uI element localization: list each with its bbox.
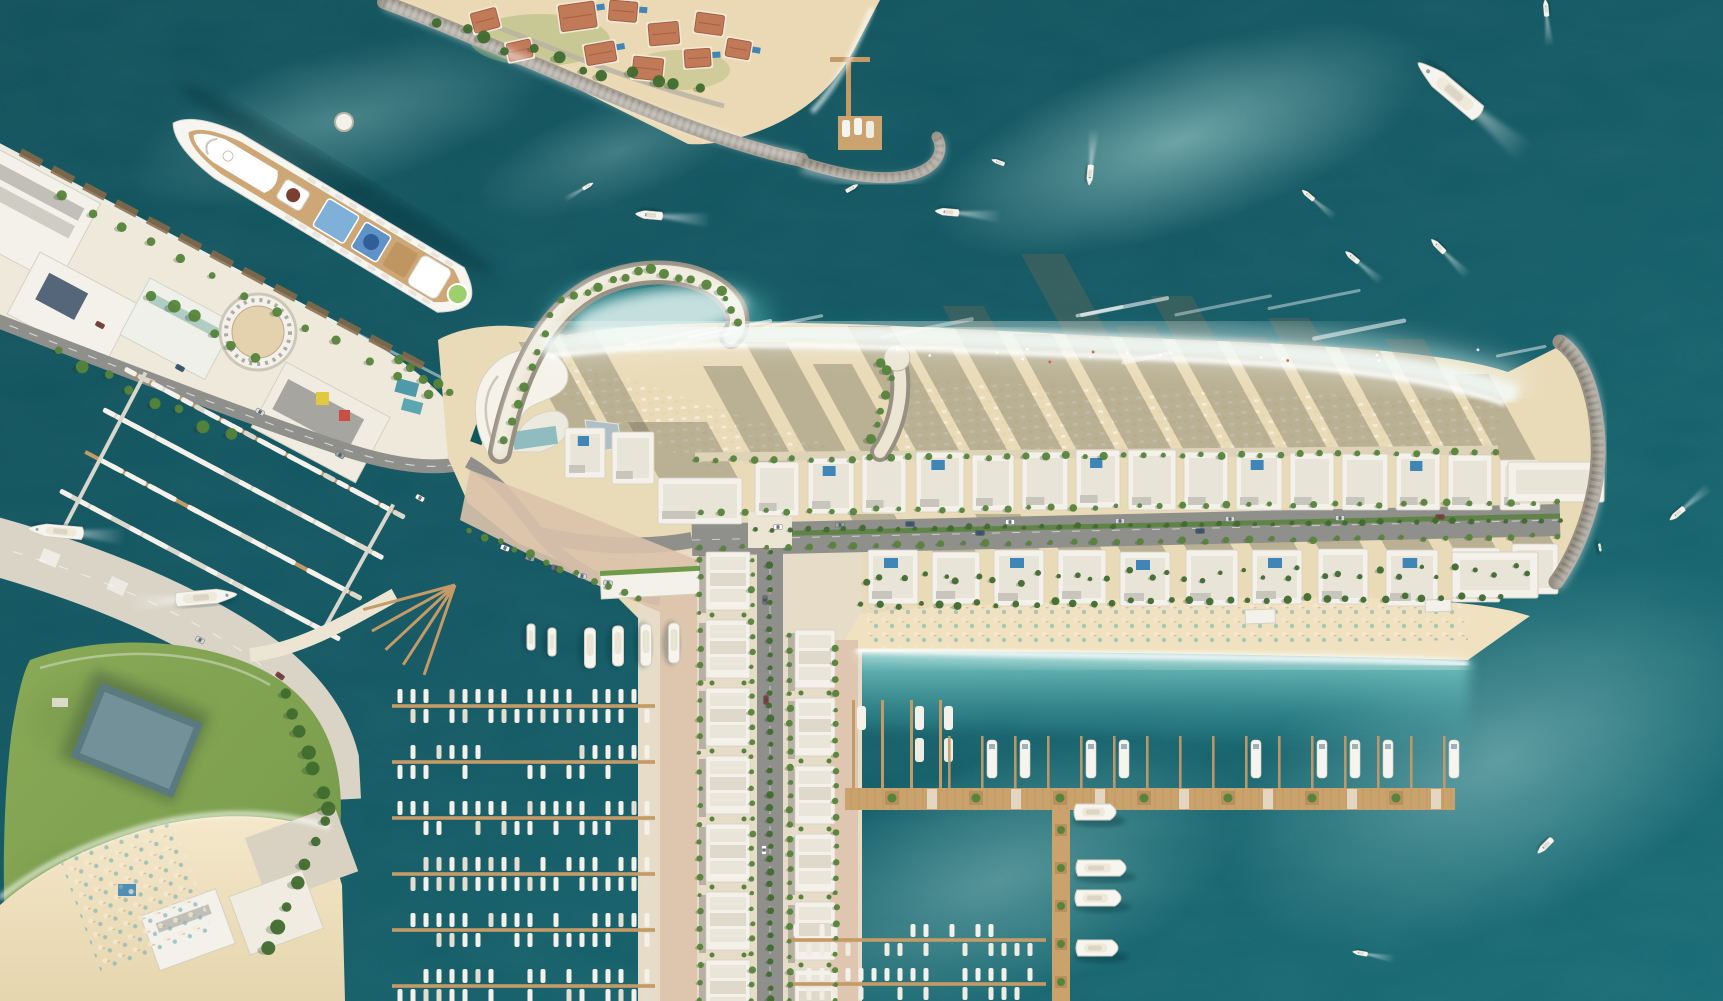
tree: [882, 365, 892, 375]
tree: [1452, 563, 1459, 570]
tree: [902, 575, 908, 581]
tree: [829, 542, 836, 549]
rooftop-plant: [1294, 497, 1312, 505]
tree: [829, 457, 835, 463]
tree: [787, 764, 794, 771]
tree: [1402, 593, 1409, 600]
beach-club: [1245, 609, 1275, 624]
swimmer: [1126, 351, 1129, 354]
berthed-boat: [885, 968, 890, 981]
berthed-boat: [567, 933, 572, 947]
berthed-boat: [528, 821, 533, 835]
tree: [554, 51, 566, 63]
berthed-boat: [606, 989, 611, 1001]
tree: [750, 921, 755, 926]
car-windshield: [1119, 519, 1122, 523]
marina-walkway: [392, 816, 655, 820]
berthed-boat: [541, 877, 546, 891]
tree: [1558, 518, 1563, 523]
berthed-boat: [567, 801, 572, 815]
tree: [749, 739, 755, 745]
tree: [311, 837, 321, 847]
tree: [1316, 450, 1323, 457]
berthed-boat: [554, 801, 559, 815]
tree: [786, 647, 792, 653]
tree: [939, 507, 945, 513]
tree: [1487, 501, 1492, 506]
garden-tree: [827, 827, 832, 832]
green-roof-building: [600, 566, 701, 599]
rooftop-plant: [1132, 497, 1151, 505]
townhouse-roof-unit: [710, 725, 746, 738]
berthed-boat: [463, 709, 468, 723]
tree: [251, 353, 261, 363]
tree: [1111, 524, 1116, 529]
rooftop-plant: [872, 591, 892, 599]
container-red: [339, 410, 350, 421]
tree: [105, 370, 114, 379]
tree: [1479, 594, 1486, 601]
yacht-windshield: [1451, 744, 1457, 749]
tree: [1335, 450, 1341, 456]
tree: [841, 526, 846, 531]
tree: [646, 264, 656, 274]
tree: [1522, 518, 1528, 524]
villa-pool: [596, 4, 605, 11]
berthed-boat: [820, 968, 825, 981]
berthed-boat: [794, 924, 799, 937]
tree: [768, 742, 773, 747]
planter-tree: [1057, 826, 1065, 834]
garden-tree: [742, 749, 747, 754]
tree: [727, 306, 735, 314]
berthed-boat: [645, 989, 650, 1001]
tree: [1377, 566, 1384, 573]
tree: [424, 390, 434, 400]
berthed-boat: [515, 877, 520, 891]
tree: [697, 662, 703, 668]
berthed-boat: [606, 821, 611, 835]
east-building-court: [1516, 470, 1596, 494]
tree: [832, 690, 839, 697]
yacht-windshield: [1352, 744, 1358, 749]
berthed-boat: [489, 913, 494, 927]
tree: [917, 541, 925, 549]
townhouse-roof-unit: [710, 557, 746, 570]
berthed-boat: [515, 933, 520, 947]
berthed-boat: [915, 706, 924, 730]
villa-pool: [712, 51, 720, 58]
tree: [766, 703, 772, 709]
car: [976, 531, 985, 536]
tree: [1264, 598, 1270, 604]
tree: [698, 893, 702, 897]
townhouse-roof-unit: [799, 923, 831, 936]
tree: [1555, 534, 1561, 540]
tree: [1306, 520, 1311, 525]
tree: [1042, 452, 1050, 460]
berthed-boat: [437, 989, 442, 1001]
tree: [767, 575, 773, 581]
slip-post: [1014, 736, 1017, 788]
berthed-boat: [450, 857, 455, 871]
swimmer: [1378, 359, 1381, 362]
tree: [723, 296, 729, 302]
tree: [1161, 453, 1166, 458]
berthed-boat: [580, 857, 585, 871]
tree: [749, 724, 755, 730]
tree: [635, 595, 641, 601]
rooftop-plant: [1080, 495, 1098, 503]
berthed-boat: [528, 801, 533, 815]
tree: [749, 754, 754, 759]
rooftop-plant: [1062, 591, 1081, 599]
tree: [947, 454, 952, 459]
berthed-boat: [632, 689, 637, 703]
tree: [1451, 448, 1459, 456]
tree: [764, 508, 769, 513]
swimmer: [1021, 358, 1024, 361]
tree: [1394, 451, 1399, 456]
tree: [1399, 535, 1404, 540]
tree: [1164, 522, 1169, 527]
garden-tree: [742, 681, 747, 686]
tree: [1342, 520, 1347, 525]
tree: [1246, 502, 1251, 507]
tree: [698, 509, 704, 515]
planter-tree: [1224, 794, 1233, 803]
tree: [1005, 505, 1012, 512]
boardwalk-deck-panel: [1431, 789, 1441, 809]
tree: [1203, 539, 1209, 545]
tree: [850, 508, 857, 515]
berthed-boat: [885, 943, 890, 956]
aerial-photo-harbour: [0, 0, 1723, 1001]
tree: [832, 645, 839, 652]
berthed-boat: [554, 709, 559, 723]
yacht-windshield: [1253, 744, 1259, 749]
berthed-boat: [476, 933, 481, 947]
yacht-windshield: [1088, 744, 1094, 749]
tree: [1433, 448, 1440, 455]
tree: [833, 752, 839, 758]
car-windshield: [1229, 517, 1232, 521]
townhouse-roof-unit: [710, 625, 746, 638]
berthed-boat: [528, 765, 533, 779]
tree: [1004, 453, 1011, 460]
tree: [749, 665, 753, 669]
tree: [286, 708, 297, 719]
tree: [508, 417, 516, 425]
tree: [1147, 524, 1151, 528]
berthed-boat: [476, 857, 481, 871]
berthed-boat: [632, 989, 637, 1001]
tree: [1357, 574, 1362, 579]
villa: [646, 19, 682, 48]
tree: [1245, 597, 1251, 603]
berthed-boat: [807, 968, 812, 981]
car-windshield: [839, 523, 842, 527]
tree: [717, 509, 725, 517]
berthed-boat: [606, 913, 611, 927]
swimmer: [996, 351, 999, 354]
tree: [866, 454, 873, 461]
car-windshield: [762, 849, 766, 852]
berthed-boat: [911, 924, 916, 937]
berthed-boat: [541, 765, 546, 779]
tree: [697, 908, 704, 915]
townhouse-roof-unit: [710, 589, 746, 602]
berthed-boat: [593, 709, 598, 723]
tree: [89, 210, 98, 219]
tree: [768, 587, 773, 592]
berthed-boat: [1028, 968, 1033, 981]
townhouse-roof-unit: [710, 845, 746, 858]
berthed-boat: [528, 689, 533, 703]
berthed-boat: [1002, 987, 1007, 1000]
finger-pier: [939, 700, 942, 790]
tree: [767, 768, 773, 774]
tree: [498, 538, 504, 544]
berthed-boat: [502, 709, 507, 723]
tree: [730, 455, 737, 462]
tree: [1524, 571, 1530, 577]
rooftop-plant: [812, 501, 830, 509]
tree: [764, 545, 769, 550]
tree: [697, 611, 701, 615]
tree: [585, 289, 592, 296]
tree: [749, 846, 754, 851]
planter-tree: [972, 794, 981, 803]
tree: [117, 222, 127, 232]
tree: [787, 691, 792, 696]
tree: [406, 363, 415, 372]
tree: [1514, 563, 1519, 568]
tree: [1072, 539, 1078, 545]
rooftop-plant: [662, 511, 696, 519]
tree: [1374, 450, 1380, 456]
tree: [1507, 499, 1515, 507]
tree: [833, 721, 839, 727]
tree: [936, 600, 944, 608]
tree: [1472, 449, 1478, 455]
tree: [1443, 499, 1451, 507]
tree: [281, 688, 291, 698]
tree: [749, 935, 755, 941]
tree: [788, 793, 793, 798]
berthed-boat: [463, 801, 468, 815]
tree: [1181, 576, 1187, 582]
tree: [1129, 523, 1133, 527]
berthed-boat: [489, 709, 494, 723]
berthed-boat: [580, 821, 585, 835]
tree: [1057, 524, 1062, 529]
berthed-boat: [450, 877, 455, 891]
finger-pier: [852, 700, 855, 790]
berthed-boat: [437, 913, 442, 927]
townhouse-roof-unit: [799, 991, 831, 1001]
tree: [1335, 535, 1341, 541]
tree: [1443, 536, 1448, 541]
marina-walkway: [392, 984, 655, 988]
car-windshield: [979, 531, 982, 535]
berthed-boat: [463, 877, 468, 891]
tree: [593, 283, 602, 292]
berthed-boat: [476, 689, 481, 703]
townhouse-roof-unit: [799, 771, 831, 784]
planter-tree: [1057, 978, 1065, 986]
berthed-boat: [645, 745, 650, 759]
tree: [419, 375, 428, 384]
tree: [57, 190, 67, 200]
tree: [749, 907, 754, 912]
townhouse-roof-unit: [799, 855, 831, 868]
rooftop-pool: [1403, 558, 1418, 568]
tree: [697, 926, 703, 932]
garden-tree: [799, 827, 804, 832]
tree: [299, 859, 311, 871]
tree: [432, 18, 442, 28]
marina-walkway: [392, 872, 655, 876]
tree: [982, 539, 990, 547]
berthed-boat: [619, 709, 624, 723]
tree: [742, 509, 749, 516]
berthed-boat: [541, 969, 546, 983]
car: [774, 525, 783, 530]
tree: [1554, 499, 1560, 505]
tree: [863, 579, 870, 586]
tree: [1377, 518, 1384, 525]
tree: [1109, 600, 1116, 607]
tree: [366, 357, 374, 365]
berthed-boat: [437, 877, 442, 891]
berthed-boat: [619, 913, 624, 927]
berthed-boat: [820, 924, 825, 937]
car-windshield: [1339, 516, 1342, 520]
tree: [698, 680, 704, 686]
berthed-boat: [924, 987, 929, 1000]
tree: [1198, 451, 1204, 457]
berthed-boat: [632, 877, 637, 891]
berthed-boat: [1028, 943, 1033, 956]
tree: [787, 909, 793, 915]
berthed-boat: [450, 801, 455, 815]
tree: [749, 876, 754, 881]
berthed-boat: [619, 801, 624, 815]
tree: [768, 550, 773, 555]
townhouse-shadow: [699, 555, 706, 613]
berthed-boat: [437, 857, 442, 871]
tree: [787, 894, 793, 900]
berthed-boat: [606, 801, 611, 815]
boardwalk-deck-panel: [1263, 789, 1273, 809]
tree: [1034, 602, 1040, 608]
berthed-boat: [489, 689, 494, 703]
rooftop-pool: [823, 466, 836, 476]
tree: [542, 330, 549, 337]
berthed-boat: [976, 924, 981, 937]
tree: [873, 505, 879, 511]
garden-tree: [827, 963, 832, 968]
finger-pier: [910, 700, 913, 790]
tree: [766, 804, 773, 811]
townhouse-roof-unit: [710, 573, 746, 586]
garden-tree: [799, 759, 804, 764]
berthed-boat: [450, 913, 455, 927]
tree: [1093, 505, 1098, 510]
planter-tree: [888, 794, 897, 803]
boardwalk-deck-panel: [1347, 789, 1357, 809]
tree: [788, 748, 794, 754]
tree: [579, 67, 587, 75]
garden-tree: [710, 749, 715, 754]
jetty-boat: [866, 121, 874, 138]
berthed-boat: [424, 877, 429, 891]
motorboat-deck: [1088, 169, 1092, 176]
berthed-boat: [915, 738, 924, 762]
tree: [446, 389, 453, 396]
tree: [1469, 518, 1475, 524]
tree: [1309, 536, 1317, 544]
tree: [767, 817, 774, 824]
tree: [320, 816, 330, 826]
tree: [1126, 567, 1133, 574]
villa-pool: [639, 7, 647, 14]
tree: [1291, 537, 1296, 542]
townhouse-roof-unit: [710, 777, 746, 790]
boardwalk-deck-panel: [1011, 789, 1021, 809]
tree: [1200, 578, 1206, 584]
tree: [834, 783, 839, 788]
tree: [547, 312, 553, 318]
townhouse-roof-unit: [710, 929, 746, 942]
tree: [1169, 597, 1175, 603]
berthed-boat: [424, 765, 429, 779]
tree: [788, 735, 794, 741]
megayacht-cabin: [1087, 896, 1102, 901]
tree: [832, 676, 839, 683]
berthed-boat: [411, 709, 416, 723]
car: [1226, 517, 1235, 522]
townhouse-roof-unit: [710, 761, 746, 774]
tree: [1090, 538, 1098, 546]
tree: [698, 962, 704, 968]
tree: [1157, 503, 1163, 509]
swimmer: [896, 348, 899, 351]
townhouse-roof-unit: [710, 793, 746, 806]
tree: [905, 453, 912, 460]
tree: [748, 709, 755, 716]
berthed-boat: [489, 989, 494, 1001]
tree: [1284, 596, 1292, 604]
car-windshield: [1199, 529, 1202, 533]
tree: [768, 665, 773, 670]
tree: [749, 966, 756, 973]
tree: [751, 603, 755, 607]
tree: [306, 761, 320, 775]
tree: [807, 508, 812, 513]
berthed-boat: [924, 943, 929, 956]
swimmer: [1376, 354, 1379, 357]
tree: [713, 458, 719, 464]
berthed-boat: [554, 913, 559, 927]
tree: [1022, 452, 1029, 459]
berthed-boat: [632, 745, 637, 759]
tree: [915, 507, 920, 512]
tree: [833, 859, 839, 865]
tree: [832, 659, 839, 666]
tree: [1278, 452, 1285, 459]
